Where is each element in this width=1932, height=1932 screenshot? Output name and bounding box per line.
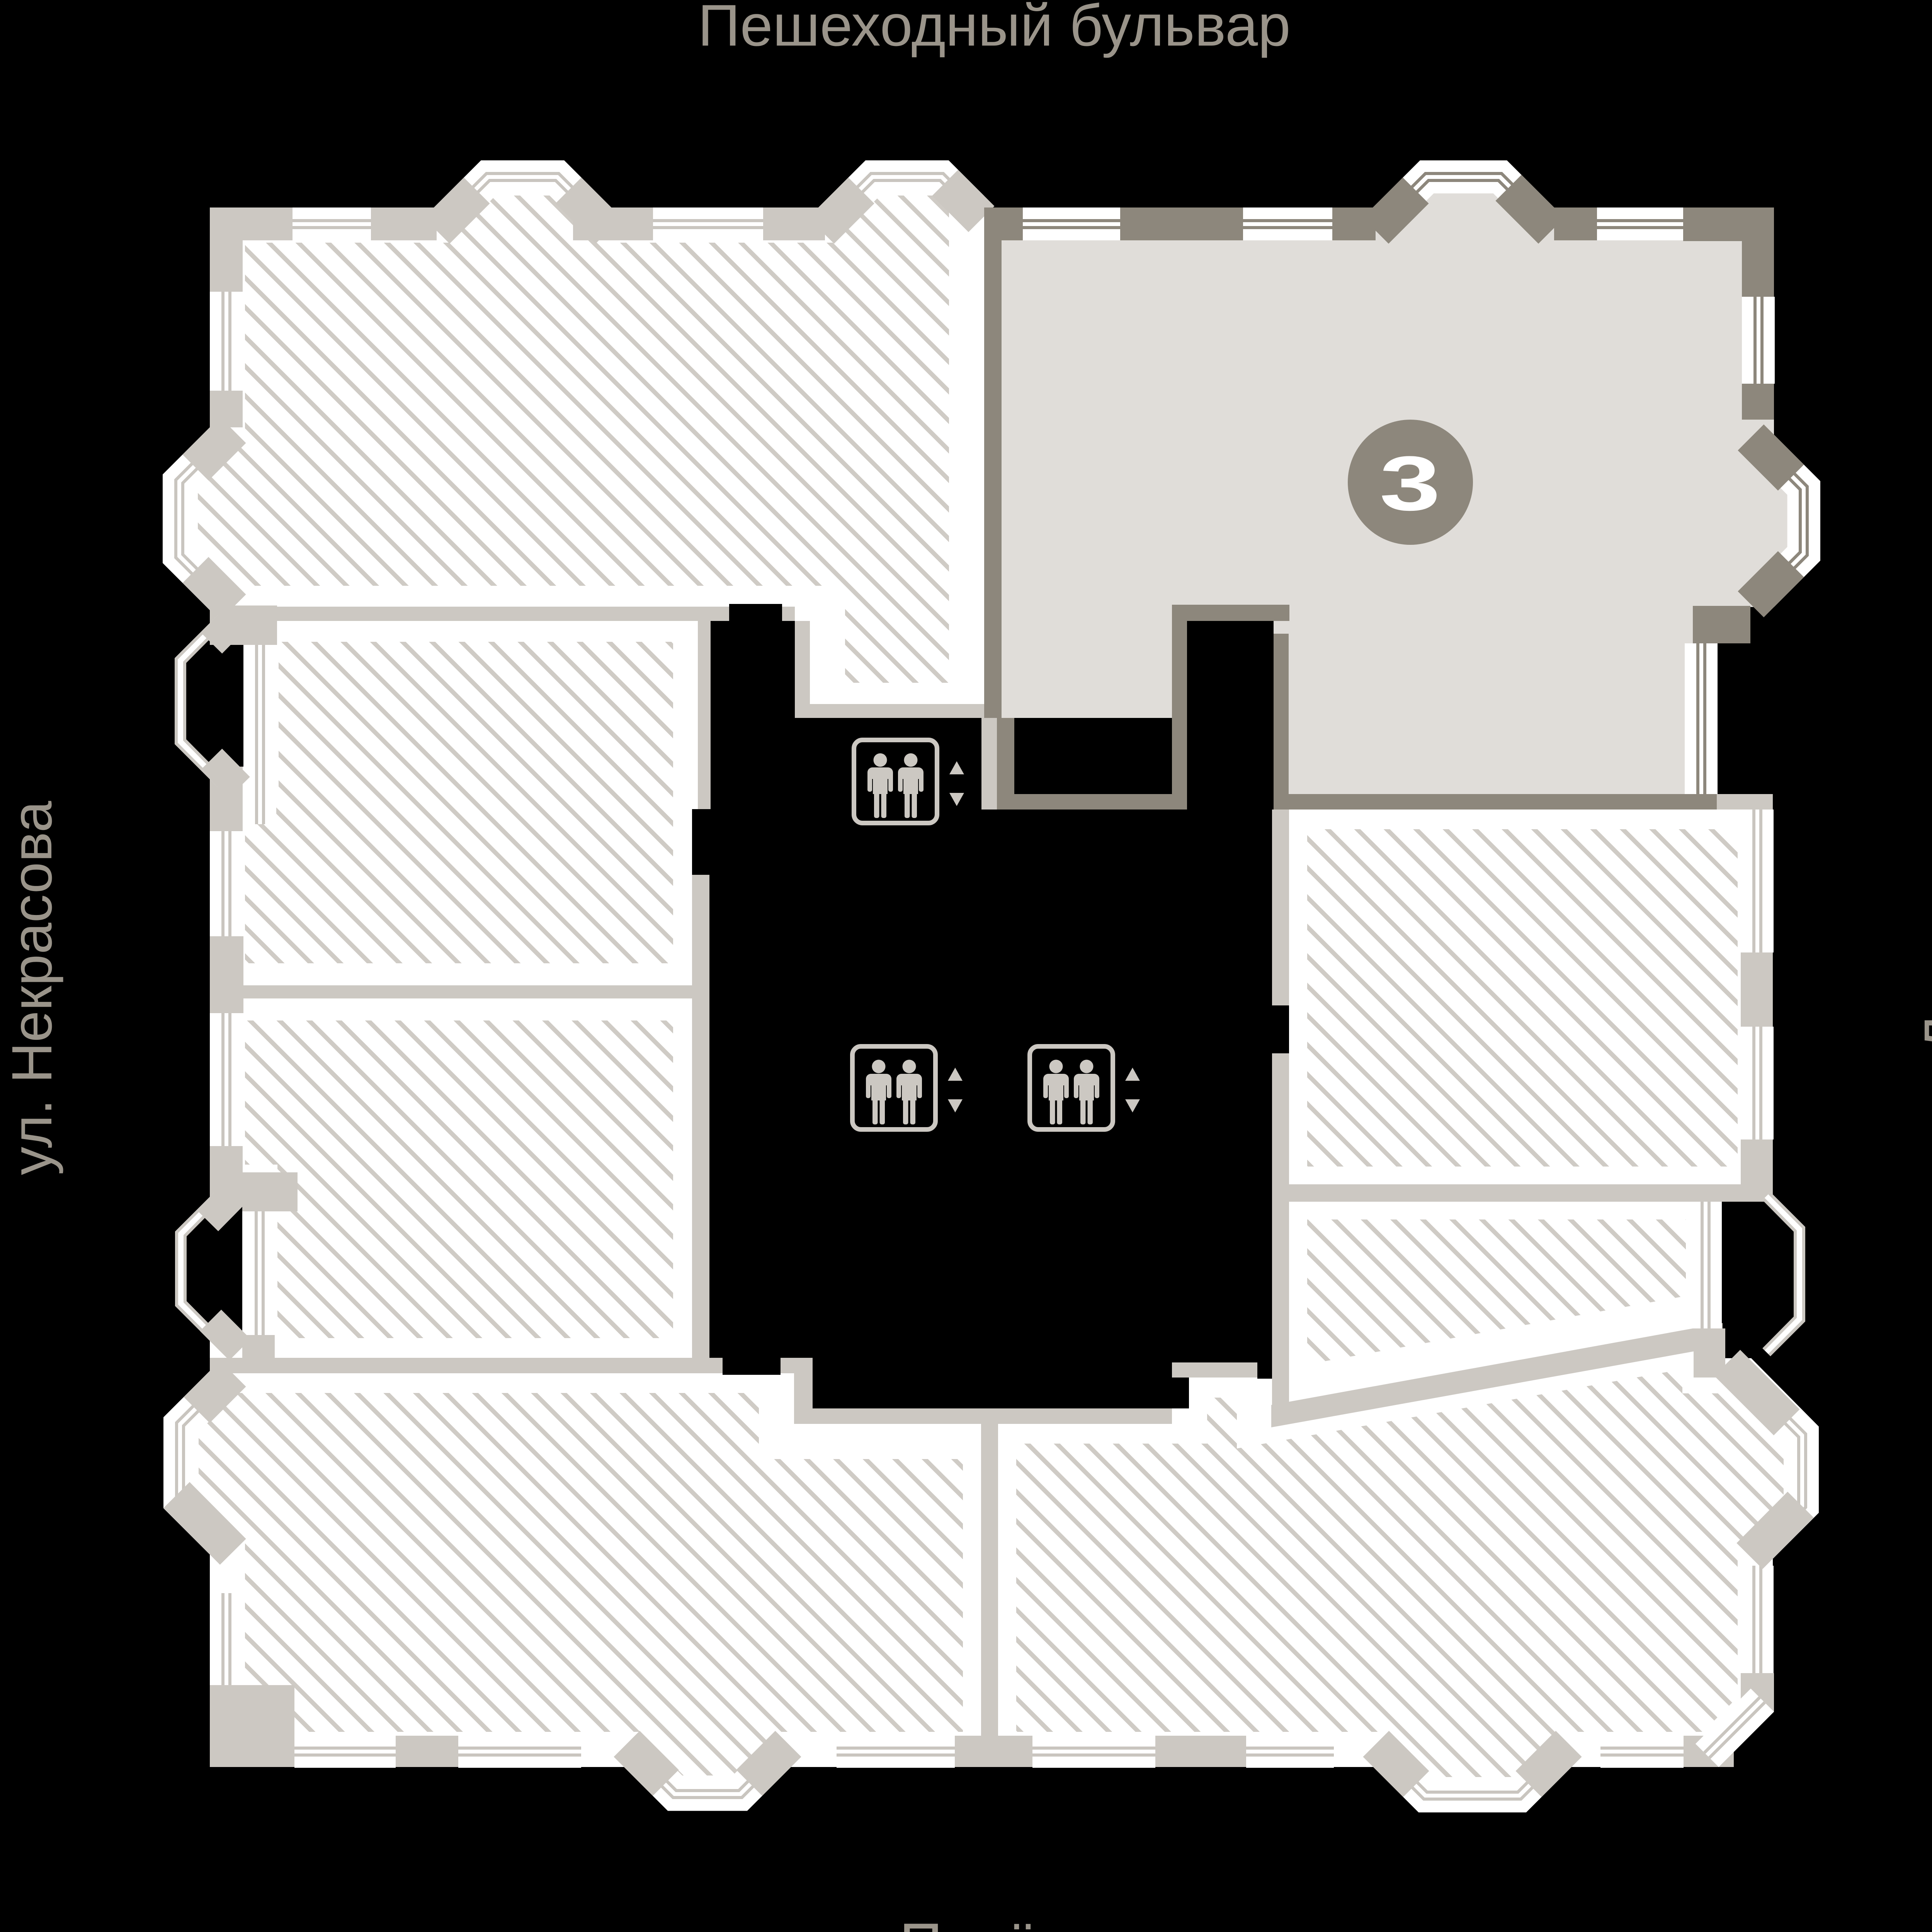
svg-text:ул. Печёрская: ул. Печёрская	[802, 1911, 1197, 1932]
svg-text:3: 3	[1379, 440, 1440, 527]
svg-text:Пешеходный бульвар: Пешеходный бульвар	[698, 0, 1291, 58]
svg-text:Двор: Двор	[1913, 922, 1932, 1053]
svg-text:ул. Некрасова: ул. Некрасова	[0, 801, 64, 1175]
